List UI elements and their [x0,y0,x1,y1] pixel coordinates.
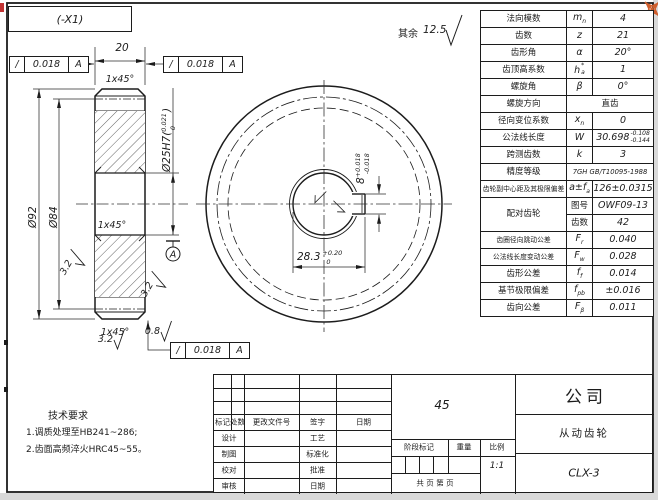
roughness-value: 0.8 [145,326,160,337]
param-name: 跨测齿数 [481,147,567,164]
param-name: 齿向公差 [481,300,567,317]
param-value: 0° [593,79,654,96]
role-label-left: 校对 [222,465,237,476]
bore-dim-main: Ø25H7( [161,131,173,173]
technical-requirements: 技术要求 1.调质处理至HB241~286; 2.齿面高频淬火HRC45~55。 [26,408,147,459]
param-symbol: Fr [567,232,593,249]
param-symbol: z [567,28,593,45]
param-value: 20° [593,45,654,62]
gear-table-row: 齿向公差Fβ0.011 [481,300,654,317]
tech-req-line: 1.调质处理至HB241~286; [26,425,147,442]
param-symbol: h*a [567,62,593,79]
datum-a-label: A [169,250,177,261]
parallelism-icon: / [171,343,186,358]
grid-line [214,478,391,479]
chamfer-bore-label: 1x45° [98,220,127,231]
param-value: 7GH GB/T10095-1988 [567,164,654,181]
param-name: 齿数 [481,28,567,45]
grid-line [419,456,420,473]
grid-line [391,439,515,440]
outer-dia-dim: Ø92 [27,206,39,229]
revision-header-label: 更改文件号 [253,417,291,428]
grid-line [214,430,391,431]
param-symbol: a±fa [567,181,593,198]
param-name: 径向变位系数 [481,113,567,130]
gear-table-row: 齿轮副中心距及其极限偏差a±fa126±0.0315 [481,181,654,198]
view-label: (-X1) [57,13,84,26]
drawing-number: CLX-3 [568,467,599,480]
roughness-value: 3.2 [58,258,75,277]
param-symbol: Fw [567,249,593,266]
parallelism-icon: / [10,57,25,72]
bore-dim-upper: 0.021 [160,113,168,132]
param-symbol: α [567,45,593,62]
param-value: 直齿 [567,96,654,113]
param-value: 0 [593,113,654,130]
param-value: 1 [593,62,654,79]
grid-line [480,439,481,494]
page-count-text: 共 页 第 页 [416,478,453,489]
gear-table-row: 齿形角α20° [481,45,654,62]
tolerance-datum: A [223,57,242,72]
company-name: 公司 [565,383,607,408]
param-value: 42 [593,215,654,232]
param-name: 法向模数 [481,11,567,28]
revision-header-label: 标记 [215,417,230,428]
param-symbol: 图号 [567,198,593,215]
grid-line [336,375,337,494]
param-value: 126±0.0315 [593,181,654,198]
grid-line [214,462,391,463]
tech-req-title: 技术要求 [48,408,147,425]
gear-table-row: 齿圈径向跳动公差Fr0.040 [481,232,654,249]
drawing-sheet: { "window": { "tab_label": "(-X1)" }, "g… [0,0,658,500]
tolerance-value: 0.018 [179,57,223,72]
gear-table-row: 法向模数mn4 [481,11,654,28]
gear-parameter-table: 法向模数mn4齿数z21齿形角α20°齿顶高系数h*a1螺旋角β0°螺旋方向直齿… [480,10,654,317]
roughness-value: 3.2 [98,334,113,345]
tolerance-value: 0.018 [25,57,69,72]
chamfer-top-label: 1x45° [106,74,135,85]
param-value: 4 [593,11,654,28]
bore-dim-lower: 0 [169,126,177,130]
param-name: 精度等级 [481,164,567,181]
param-name: 齿轮副中心距及其极限偏差 [481,181,567,198]
param-symbol: 齿数 [567,215,593,232]
role-label-left: 设计 [222,433,237,444]
gear-table-row: 螺旋方向直齿 [481,96,654,113]
title-block: 45 阶段标记 重量 比例 1:1 共 页 第 页 公司 从动齿轮 CLX-3 … [213,374,653,493]
param-value: ±0.016 [593,283,654,300]
general-roughness-note: 其余 12.5 [398,15,462,45]
param-symbol: W [567,130,593,147]
gear-table-row: 齿形公差ff0.014 [481,266,654,283]
role-label-right: 工艺 [310,433,325,444]
gear-table-row: 螺旋角β0° [481,79,654,96]
stage-mark-header: 阶段标记 [404,442,434,453]
param-name: 齿形公差 [481,266,567,283]
param-symbol: xn [567,113,593,130]
gear-table-row: 基节极限偏差fpb±0.016 [481,283,654,300]
parallelism-frame-bottom: / 0.018 A [170,342,250,359]
param-symbol: ff [567,266,593,283]
gear-table-row: 齿数z21 [481,28,654,45]
hatch-upper [95,111,145,173]
gear-table-row: 跨测齿数k3 [481,147,654,164]
keyway-width-lower: -0.018 [363,153,371,174]
param-name: 齿形角 [481,45,567,62]
pitch-dia-dim: Ø84 [48,206,60,229]
general-roughness-prefix: 其余 [398,27,418,40]
border-centering-mark [4,387,8,392]
keyway-width-dim: 8+0.018-0.018 [354,153,371,184]
roughness-mark-bore: 0.8 [145,321,172,341]
datum-a-symbol: A [166,241,180,261]
role-label-right: 批准 [310,465,325,476]
roughness-mark-left: 3.2 [58,249,88,281]
param-value: 30.698-0.108-0.144 [593,130,654,147]
grid-line [515,375,516,494]
tolerance-datum: A [230,343,249,358]
grid-line [433,456,434,473]
grid-line [214,388,391,389]
part-name: 从动齿轮 [559,426,609,441]
grid-line [214,401,391,402]
border-centering-mark [4,340,8,345]
gear-table-row: 配对齿轮图号OWF09-13 [481,198,654,215]
param-symbol: β [567,79,593,96]
grid-line [391,375,392,494]
grid-line [391,473,480,474]
grid-line [405,456,406,473]
param-symbol: k [567,147,593,164]
corner-artifact-mark [0,3,4,12]
param-value: OWF09-13 [593,198,654,215]
grid-line [299,375,300,494]
grid-line [214,446,391,447]
gear-table-row: 精度等级7GH GB/T10095-1988 [481,164,654,181]
role-label-left: 审核 [222,481,237,492]
keyway-depth-lower: 0 [326,258,330,266]
param-value: 0.011 [593,300,654,317]
grid-line [391,456,515,457]
tolerance-value: 0.018 [186,343,230,358]
hatch-lower [95,235,145,297]
revision-header-label: 签字 [310,417,325,428]
gear-table-row: 公法线长度变动公差Fw0.028 [481,249,654,266]
left-section-view [76,89,188,319]
tolerance-datum: A [69,57,88,72]
param-name: 齿圈径向跳动公差 [481,232,567,249]
parallelism-frame-top-left: / 0.018 A [9,56,89,73]
param-value: 0.028 [593,249,654,266]
param-name: 齿顶高系数 [481,62,567,79]
gear-table-row: 齿顶高系数h*a1 [481,62,654,79]
param-name: 配对齿轮 [481,198,567,232]
gear-table-row: 径向变位系数xn0 [481,113,654,130]
param-name: 螺旋方向 [481,96,567,113]
param-value: 21 [593,28,654,45]
param-symbol: mn [567,11,593,28]
scale-value: 1:1 [490,461,504,471]
weight-header: 重量 [457,442,472,453]
material-spec: 45 [434,398,449,412]
roughness-check-icon [446,15,462,45]
parallelism-frame-top-right: / 0.018 A [163,56,243,73]
keyway-width-upper: +0.018 [354,153,362,177]
width-dim: 20 [115,42,129,54]
param-name: 基节极限偏差 [481,283,567,300]
front-view [196,80,452,332]
tech-req-line: 2.齿面高频淬火HRC45~55。 [26,442,147,459]
role-label-right: 日期 [310,481,325,492]
role-label-right: 标准化 [306,449,329,460]
param-value: 0.040 [593,232,654,249]
keyway-depth-dim: 28.3+0.200 [297,249,342,266]
gear-table-row: 公法线长度W30.698-0.108-0.144 [481,130,654,147]
grid-line [244,375,245,494]
param-value: 3 [593,147,654,164]
keyway-depth-upper: +0.20 [322,249,342,257]
param-name: 公法线长度 [481,130,567,147]
param-name: 公法线长度变动公差 [481,249,567,266]
param-name: 螺旋角 [481,79,567,96]
revision-header-label: 处数 [230,417,245,428]
param-value: 0.014 [593,266,654,283]
param-symbol: Fβ [567,300,593,317]
view-label-tab: (-X1) [8,6,132,32]
keyway-depth-main: 28.3 [297,251,320,263]
param-symbol: fpb [567,283,593,300]
bore-dim: Ø25H7(0.0210) [160,108,177,173]
grid-line [515,453,654,454]
scale-header: 比例 [490,442,505,453]
bore-dim-suffix: ) [161,108,173,113]
revision-header-label: 日期 [356,417,371,428]
general-roughness-value: 12.5 [423,24,447,36]
grid-line [214,414,391,415]
role-label-left: 制图 [222,449,237,460]
grid-line [515,414,654,415]
parallelism-icon: / [164,57,179,72]
